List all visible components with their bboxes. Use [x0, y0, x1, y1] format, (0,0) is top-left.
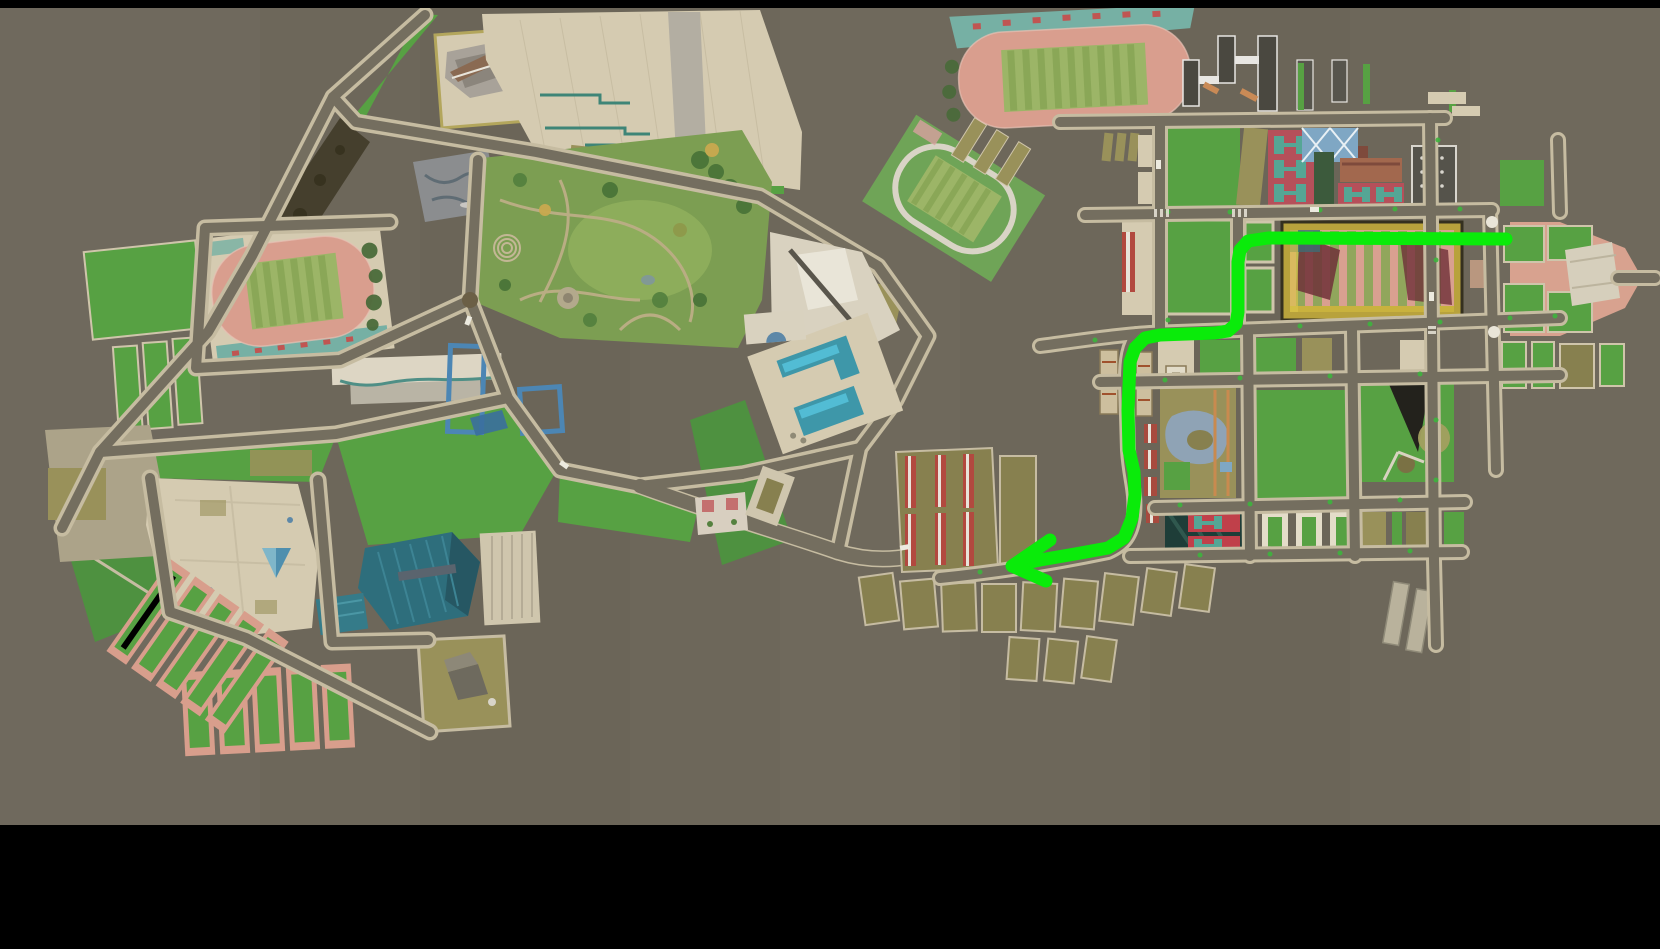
- roundabout-south: [1488, 326, 1500, 338]
- service-yard: [418, 636, 510, 732]
- west-lawn: [84, 240, 205, 339]
- north-stadium: [938, 4, 1201, 131]
- pond-garden: [1160, 388, 1236, 498]
- lawn-b: [1165, 220, 1235, 314]
- letterbox-top-bar: [0, 0, 1660, 8]
- fountain-pavilion: [744, 309, 806, 344]
- pink-pavilion: [695, 492, 748, 535]
- map-canvas[interactable]: [0, 0, 1660, 949]
- lawn-c: [1256, 390, 1346, 500]
- dome-top: [563, 293, 573, 303]
- east-gate-plaza: [1502, 222, 1642, 388]
- lawn-a: [1168, 126, 1240, 206]
- roundabout: [462, 292, 478, 308]
- screenshot-stage: [0, 0, 1660, 949]
- long-red-building-ridge: [1126, 232, 1130, 292]
- roundabout-north: [1486, 216, 1498, 228]
- park-pond: [641, 275, 655, 285]
- tall-trees-strip: [1314, 152, 1334, 206]
- letterbox-bottom-bar: [0, 825, 1660, 949]
- greenhouse-yard: [896, 448, 1036, 572]
- small-plot-2: [1245, 268, 1273, 312]
- row2-plots: [1122, 215, 1498, 320]
- far-east-lawn: [1500, 160, 1544, 206]
